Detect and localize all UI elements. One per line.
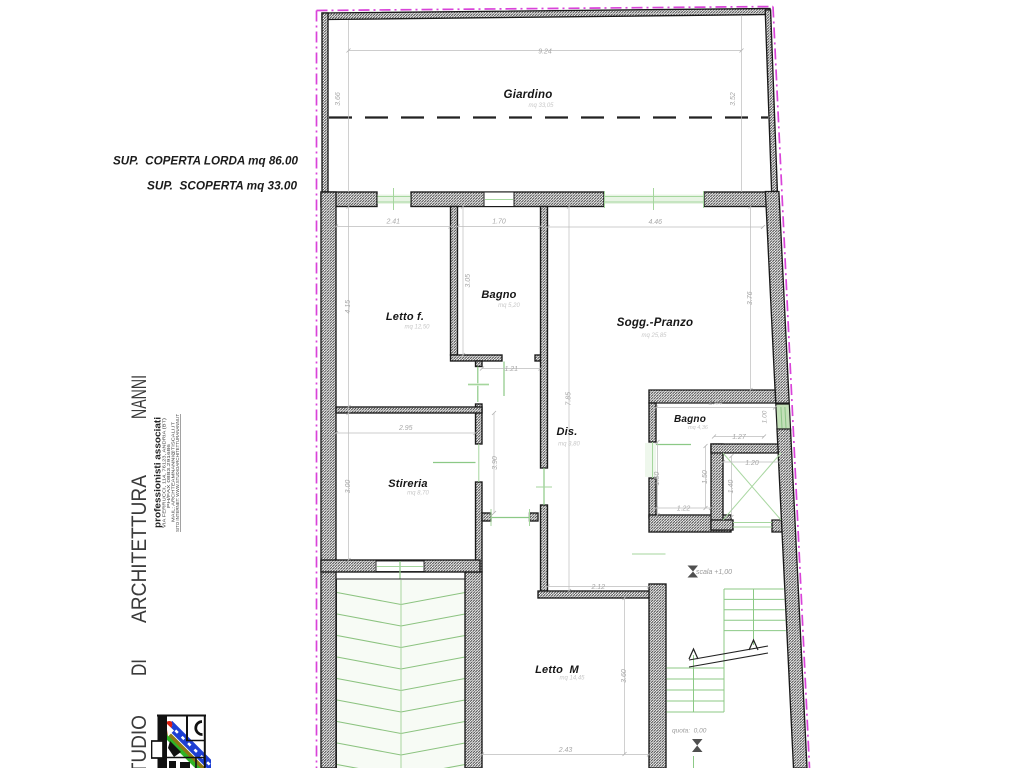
svg-text:2.12: 2.12 xyxy=(590,584,605,591)
svg-text:1.27: 1.27 xyxy=(732,434,747,441)
svg-text:Bagno: Bagno xyxy=(481,289,516,301)
svg-text:Dis.: Dis. xyxy=(557,426,578,438)
svg-text:SITO INTERNET: WWW.STUDIOARCHI: SITO INTERNET: WWW.STUDIOARCHITETTURANAN… xyxy=(175,414,180,532)
svg-text:3.05: 3.05 xyxy=(465,274,472,288)
svg-text:1.50: 1.50 xyxy=(702,470,709,484)
svg-text:3.66: 3.66 xyxy=(335,92,342,106)
svg-text:mq 12,50: mq 12,50 xyxy=(404,325,430,331)
svg-text:2.95: 2.95 xyxy=(398,425,413,432)
svg-text:mq 3,80: mq 3,80 xyxy=(558,442,580,448)
svg-text:NANNI: NANNI xyxy=(128,375,151,419)
svg-text:1.21: 1.21 xyxy=(504,366,518,373)
svg-text:Bagno: Bagno xyxy=(674,414,706,425)
svg-text:1.00: 1.00 xyxy=(762,410,769,423)
svg-text:3.60: 3.60 xyxy=(621,669,628,683)
svg-text:1.70: 1.70 xyxy=(492,219,506,226)
svg-text:3.00: 3.00 xyxy=(345,480,352,494)
svg-text:2.44: 2.44 xyxy=(708,400,723,407)
svg-text:ARCHITETTURA: ARCHITETTURA xyxy=(128,475,151,623)
svg-text:Letto f.: Letto f. xyxy=(386,311,424,323)
svg-text:SUP. SCOPERTA mq 33.00: SUP. SCOPERTA mq 33.00 xyxy=(147,179,297,193)
svg-text:mq 5,20: mq 5,20 xyxy=(498,303,520,309)
svg-text:DI: DI xyxy=(128,659,151,676)
svg-text:4.46: 4.46 xyxy=(648,219,662,226)
svg-text:mq 8,70: mq 8,70 xyxy=(407,491,429,497)
svg-text:2.43: 2.43 xyxy=(558,747,573,754)
svg-text:mq 14,45: mq 14,45 xyxy=(559,676,585,682)
svg-text:9.24: 9.24 xyxy=(538,49,552,56)
svg-text:Giardino: Giardino xyxy=(504,89,553,101)
svg-text:Letto M: Letto M xyxy=(535,664,579,676)
svg-text:STUDIO: STUDIO xyxy=(128,715,151,768)
svg-text:mq 25,85: mq 25,85 xyxy=(641,333,667,339)
svg-text:mq 4,36: mq 4,36 xyxy=(688,425,709,431)
svg-text:mq 33,05: mq 33,05 xyxy=(528,103,554,109)
svg-text:1.20: 1.20 xyxy=(745,460,759,467)
svg-text:1.50: 1.50 xyxy=(654,472,661,486)
svg-text:scala +1,00: scala +1,00 xyxy=(696,569,732,576)
svg-text:quota: 0,00: quota: 0,00 xyxy=(672,728,707,735)
svg-text:SUP. COPERTA LORDA mq 86.00: SUP. COPERTA LORDA mq 86.00 xyxy=(113,154,298,168)
svg-text:2.41: 2.41 xyxy=(385,219,400,226)
svg-text:Stireria: Stireria xyxy=(388,478,428,490)
svg-text:Sogg.-Pranzo: Sogg.-Pranzo xyxy=(617,317,694,329)
svg-text:3.76: 3.76 xyxy=(747,291,754,305)
svg-text:1.40: 1.40 xyxy=(728,480,735,494)
svg-text:3.52: 3.52 xyxy=(730,92,737,106)
svg-text:7.85: 7.85 xyxy=(566,392,573,406)
svg-text:1.22: 1.22 xyxy=(677,506,691,513)
svg-text:3.90: 3.90 xyxy=(492,456,499,470)
svg-text:4.15: 4.15 xyxy=(345,300,352,314)
